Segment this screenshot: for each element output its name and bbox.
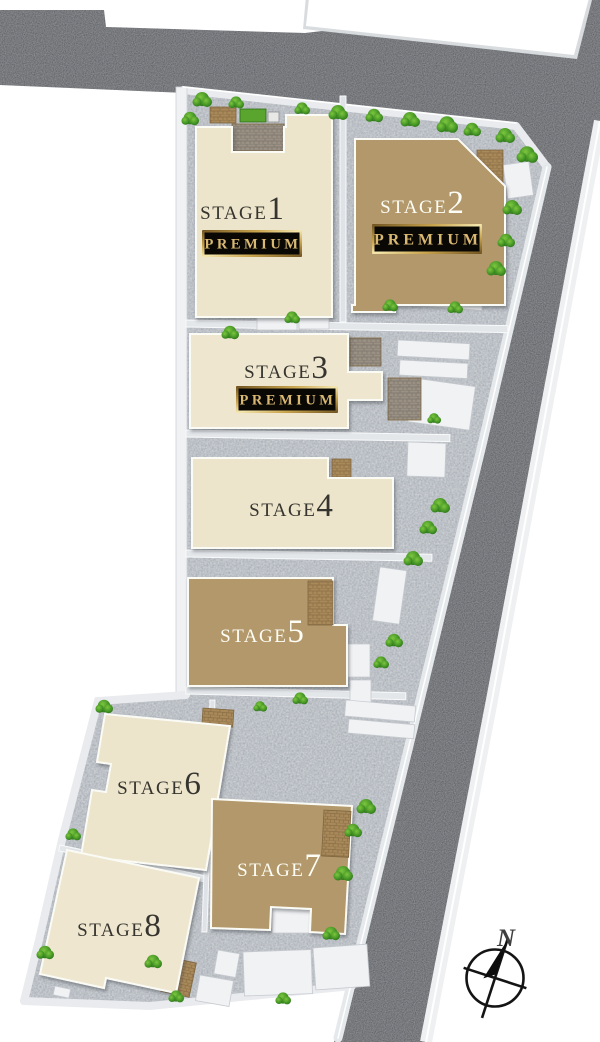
stage-2-word: STAGE bbox=[380, 197, 447, 218]
stage-4-number: 4 bbox=[316, 488, 333, 524]
stage-1-word: STAGE bbox=[200, 203, 267, 224]
stage-3-word: STAGE bbox=[244, 362, 311, 383]
deck-stage1-porch bbox=[210, 107, 236, 123]
site-plan-canvas: STAGE1 STAGE2 STAGE3 STAGE4 STAGE5 STAGE… bbox=[0, 0, 600, 1042]
stage-6-number: 6 bbox=[184, 766, 201, 802]
north-label: N bbox=[496, 925, 516, 952]
premium-badge-stage1: PREMIUM bbox=[202, 230, 302, 257]
stage-7-word: STAGE bbox=[237, 860, 304, 881]
planter-hedge bbox=[240, 109, 266, 122]
stage-5-number: 5 bbox=[287, 614, 304, 650]
stage-8-word: STAGE bbox=[77, 920, 144, 941]
premium-badge-stage2: PREMIUM bbox=[372, 224, 482, 254]
compass: N bbox=[451, 925, 540, 1028]
stage-3-number: 3 bbox=[311, 350, 328, 386]
stage-7-number: 7 bbox=[304, 848, 321, 884]
deck-stage5-top bbox=[308, 581, 333, 625]
stage-5-word: STAGE bbox=[220, 626, 287, 647]
deck-stage3 bbox=[350, 338, 381, 366]
stage-6-word: STAGE bbox=[117, 778, 184, 799]
premium-text-2: PREMIUM bbox=[374, 232, 482, 249]
site-plan: STAGE1 STAGE2 STAGE3 STAGE4 STAGE5 STAGE… bbox=[0, 0, 600, 1042]
premium-badge-stage3: PREMIUM bbox=[236, 386, 338, 413]
utility-box bbox=[268, 112, 279, 122]
stage-1-number: 1 bbox=[267, 191, 284, 227]
stage-4-word: STAGE bbox=[249, 500, 316, 521]
premium-text-3: PREMIUM bbox=[240, 393, 337, 409]
stage-2-number: 2 bbox=[447, 185, 464, 221]
stage-8-number: 8 bbox=[144, 908, 161, 944]
deck-stage3-lower bbox=[388, 378, 421, 420]
premium-text-1: PREMIUM bbox=[205, 237, 302, 253]
deck-stage1-entry bbox=[232, 124, 284, 151]
